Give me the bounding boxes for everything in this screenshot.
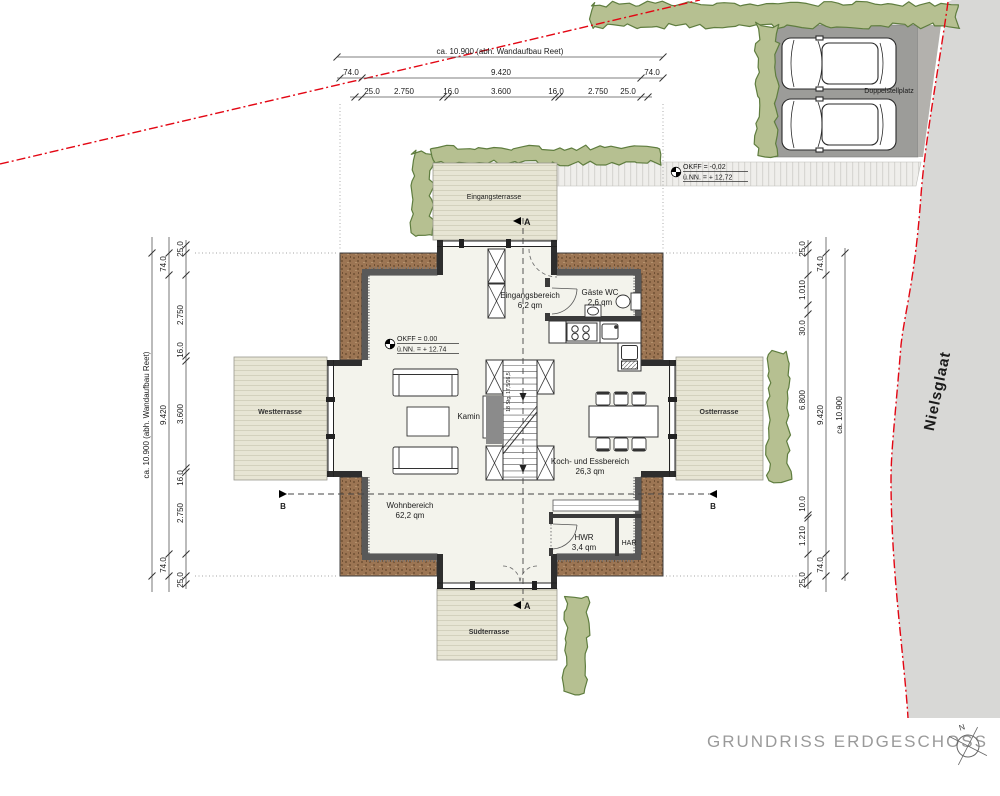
floorplan-page: { "title": "GRUNDRISS ERDGESCHOSS", "com…: [0, 0, 1000, 796]
entry-terrace: [433, 163, 557, 240]
mullion-post: [668, 434, 677, 439]
dimension-label: 2.750: [394, 87, 415, 96]
dimension-label: 74.0: [343, 68, 359, 77]
mullion-post: [668, 397, 677, 402]
svg-text:ü.NN. = + 12,72: ü.NN. = + 12,72: [683, 175, 733, 182]
dimension-label: 9.420: [491, 68, 512, 77]
dimension-label: 2.750: [588, 87, 609, 96]
hedge: [590, 1, 960, 29]
section-marker-a-top: A: [524, 217, 531, 227]
east-terrace-label: Ostterrasse: [700, 409, 739, 416]
svg-text:ü.NN. = + 12.74: ü.NN. = + 12.74: [397, 347, 447, 354]
fireplace-label: Kamin: [457, 412, 480, 421]
dimension-label: 74.0: [159, 557, 168, 573]
mullion-post: [326, 434, 335, 439]
dimension-label: 3.600: [176, 403, 185, 424]
section-marker-b-left-icon: [279, 490, 287, 498]
dimension-label: 25.0: [798, 241, 807, 257]
dimension-label: 74.0: [816, 256, 825, 272]
hedge: [754, 22, 780, 157]
dimension-label: 9.420: [816, 404, 825, 425]
dimension-label: ca. 10.900: [835, 396, 844, 434]
entry-room-area: 6,2 qm: [518, 301, 543, 310]
entry-terrace-label: Eingangsterrasse: [467, 194, 522, 201]
south-terrace: [437, 589, 557, 660]
drawing-title: GRUNDRISS ERDGESCHOSS: [707, 732, 988, 751]
parking-label: Doppelstellplatz: [864, 88, 914, 95]
dimension-label: 16.0: [548, 87, 564, 96]
car-bottom: [782, 97, 896, 152]
dimension-label: 1.210: [798, 525, 807, 546]
dimension-label: 25.0: [176, 241, 185, 257]
dimension-label: 74.0: [816, 557, 825, 573]
mullion-post: [506, 239, 511, 248]
cook-dine-label: Koch- und Essbereich: [551, 457, 629, 466]
living-label: Wohnbereich: [387, 501, 434, 510]
mullion-post: [532, 581, 537, 590]
hedge: [766, 350, 792, 482]
west-terrace: [234, 357, 327, 480]
west-terrace-label: Westterrasse: [258, 409, 302, 416]
har-label: HAR: [622, 540, 637, 547]
dimension-label: 1.010: [798, 279, 807, 300]
dimension-label: 3.600: [491, 87, 512, 96]
svg-text:OKFF = -0,02: OKFF = -0,02: [683, 164, 726, 171]
dimension-label: 2.750: [176, 304, 185, 325]
car-top: [782, 36, 896, 91]
hwr-area: 3,4 qm: [572, 543, 597, 552]
dimension-label: 74.0: [644, 68, 660, 77]
dimension-label: 16.0: [443, 87, 459, 96]
dimension-label: ca. 10.900 (abh. Wandaufbau Reet): [437, 47, 564, 56]
dimension-label: 25.0: [798, 572, 807, 588]
chimney-block: [486, 396, 503, 444]
dimension-label: 16.0: [176, 470, 185, 486]
dimension-label: 74.0: [159, 256, 168, 272]
hedge: [410, 150, 435, 236]
dining-table: [589, 406, 658, 437]
dimension-label: 16.0: [176, 342, 185, 358]
section-marker-b-right: B: [710, 502, 716, 511]
dimension-label: 25.0: [176, 572, 185, 588]
section-marker-b-right-icon: [709, 490, 717, 498]
dimension-label: ca. 10.900 (abh. Wandaufbau Reet): [142, 351, 151, 478]
mullion-post: [470, 581, 475, 590]
dimension-label: 25.0: [364, 87, 380, 96]
south-terrace-label: Südterrasse: [469, 629, 510, 636]
mullion-post: [326, 397, 335, 402]
north-label: N: [958, 722, 966, 732]
dimension-label: 30.0: [798, 320, 807, 336]
mullion-post: [459, 239, 464, 248]
east-terrace: [676, 357, 763, 480]
svg-text:OKFF = 0.00: OKFF = 0.00: [397, 336, 437, 343]
section-marker-b-left: B: [280, 502, 286, 511]
walkway: [557, 162, 921, 186]
dimension-label: 10.0: [798, 496, 807, 512]
entry-room-label: Eingangsbereich: [500, 291, 560, 300]
coffee-table: [407, 407, 449, 436]
cook-dine-area: 26,3 qm: [576, 467, 605, 476]
hwr-label: HWR: [574, 533, 593, 542]
dimension-label: 9.420: [159, 404, 168, 425]
floorplan-canvas: Doppelstellplatz Eingangsterrasse Westte…: [0, 0, 1000, 796]
sofa-north: [393, 369, 458, 396]
section-marker-a-bottom: A: [524, 601, 531, 611]
sofa-south: [393, 447, 458, 474]
wc-area: 2,6 qm: [588, 298, 613, 307]
stair-note: 18 Stg. 17,5/26,5: [506, 372, 512, 412]
dimension-label: 2.750: [176, 502, 185, 523]
staircase: 18 Stg. 17,5/26,5: [503, 360, 537, 480]
wc-label: Gäste WC: [582, 288, 619, 297]
living-area: 62,2 qm: [396, 511, 425, 520]
hedge: [562, 597, 590, 695]
dimension-label: 25.0: [620, 87, 636, 96]
dimension-label: 6.800: [798, 389, 807, 410]
